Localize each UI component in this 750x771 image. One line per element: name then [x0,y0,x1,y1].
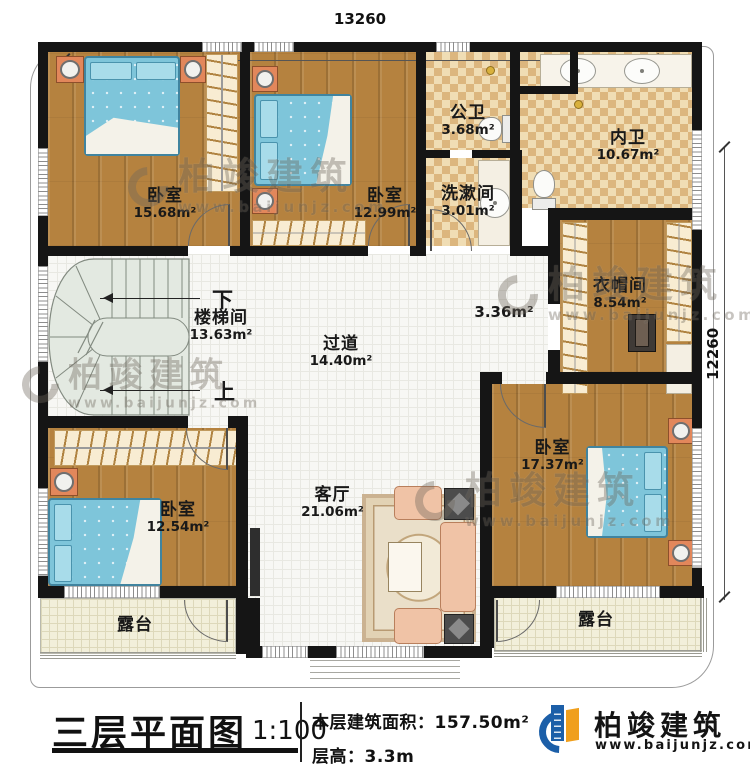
room-label-washroom: 洗漱间 3.01m² [418,184,518,220]
window [556,586,660,598]
terrace-right-side-railing [700,598,708,652]
floor-area-text: 本层建筑面积：157.50m² [312,708,529,733]
window [38,148,48,216]
room-label-hallway: 过道 14.40m² [285,334,397,370]
wall [480,598,494,648]
dressing-table [666,344,692,394]
ceiling-lamp [486,66,495,75]
side-table [444,488,474,520]
stairs-down-arrow [100,298,200,299]
window [38,488,48,576]
company-logo-url: www.baijunjz.com [595,738,750,753]
wall [480,372,502,384]
window [692,130,702,230]
nightstand [56,56,84,83]
bed [254,94,352,186]
wall [510,246,548,256]
ceiling-lamp [574,100,583,109]
side-table [444,614,474,644]
window [436,42,470,52]
loveseat [394,486,442,520]
nightstand [252,66,278,92]
wall [548,350,560,372]
wall [570,42,578,94]
room-label-stairwell: 楼梯间 13.63m² [165,308,277,344]
company-logo-icon [538,700,590,760]
room-label-cloakroom: 衣帽间 8.54m² [565,276,675,312]
entry-steps [310,660,460,680]
wall [546,372,692,384]
room-label-terrace-right: 露台 [540,610,652,630]
wall [230,246,250,256]
nightstand [180,56,206,83]
wall [426,150,450,158]
room-label-bedroom-top-left: 卧室 15.68m² [105,186,225,222]
wall [472,150,512,158]
sofa [440,522,476,612]
nightstand [252,188,278,214]
wardrobe [252,220,366,246]
wall [38,42,702,52]
nightstand [50,468,78,496]
nightstand [668,540,694,566]
terrace-left-railing [40,652,236,660]
wall [520,86,576,94]
wall [46,416,188,428]
wardrobe [206,54,238,192]
wall [240,42,250,254]
wall [46,246,188,256]
loveseat [394,608,442,644]
wall [250,246,368,256]
window [336,646,424,658]
nightstand [668,418,694,444]
floor-height-text: 层高：3.3m [312,742,414,767]
tv [250,528,260,596]
window [202,42,242,52]
room-label-inner-bath: 内卫 10.67m² [572,128,684,164]
toilet [530,170,558,210]
coffee-table [388,542,422,592]
wall [510,42,520,158]
room-label-public-bath: 公卫 3.68m² [420,103,516,139]
dimension-top-label: 13260 [30,10,690,28]
dimension-right-line [724,148,725,600]
dimension-right-label: 12260 [704,290,722,380]
room-label-terrace-left: 露台 [80,615,190,635]
title-underline [52,748,298,753]
window [692,428,702,568]
stairs-up-arrow [100,390,200,391]
sink [624,58,660,84]
wall [480,384,492,586]
window [254,42,294,52]
window [38,266,48,362]
wall [548,208,692,220]
terrace-right-railing [494,650,702,658]
wall [416,42,426,254]
floor-plan-canvas: 13260 12260 [0,0,750,771]
window [262,646,308,658]
title-divider [300,702,302,762]
wall [548,220,560,304]
sink [560,58,596,84]
window [64,586,160,598]
dresser [628,314,656,352]
room-label-bedroom-bottom-left: 卧室 12.54m² [120,500,236,536]
wall [236,416,248,598]
wall [410,246,426,256]
stairs-up-label: 上 [214,376,235,406]
bed [84,56,180,156]
room-label-passage: 3.36m² [452,304,556,322]
room-label-living-room: 客厅 21.06m² [275,485,390,521]
room-label-bedroom-bottom-right: 卧室 17.37m² [495,438,610,474]
